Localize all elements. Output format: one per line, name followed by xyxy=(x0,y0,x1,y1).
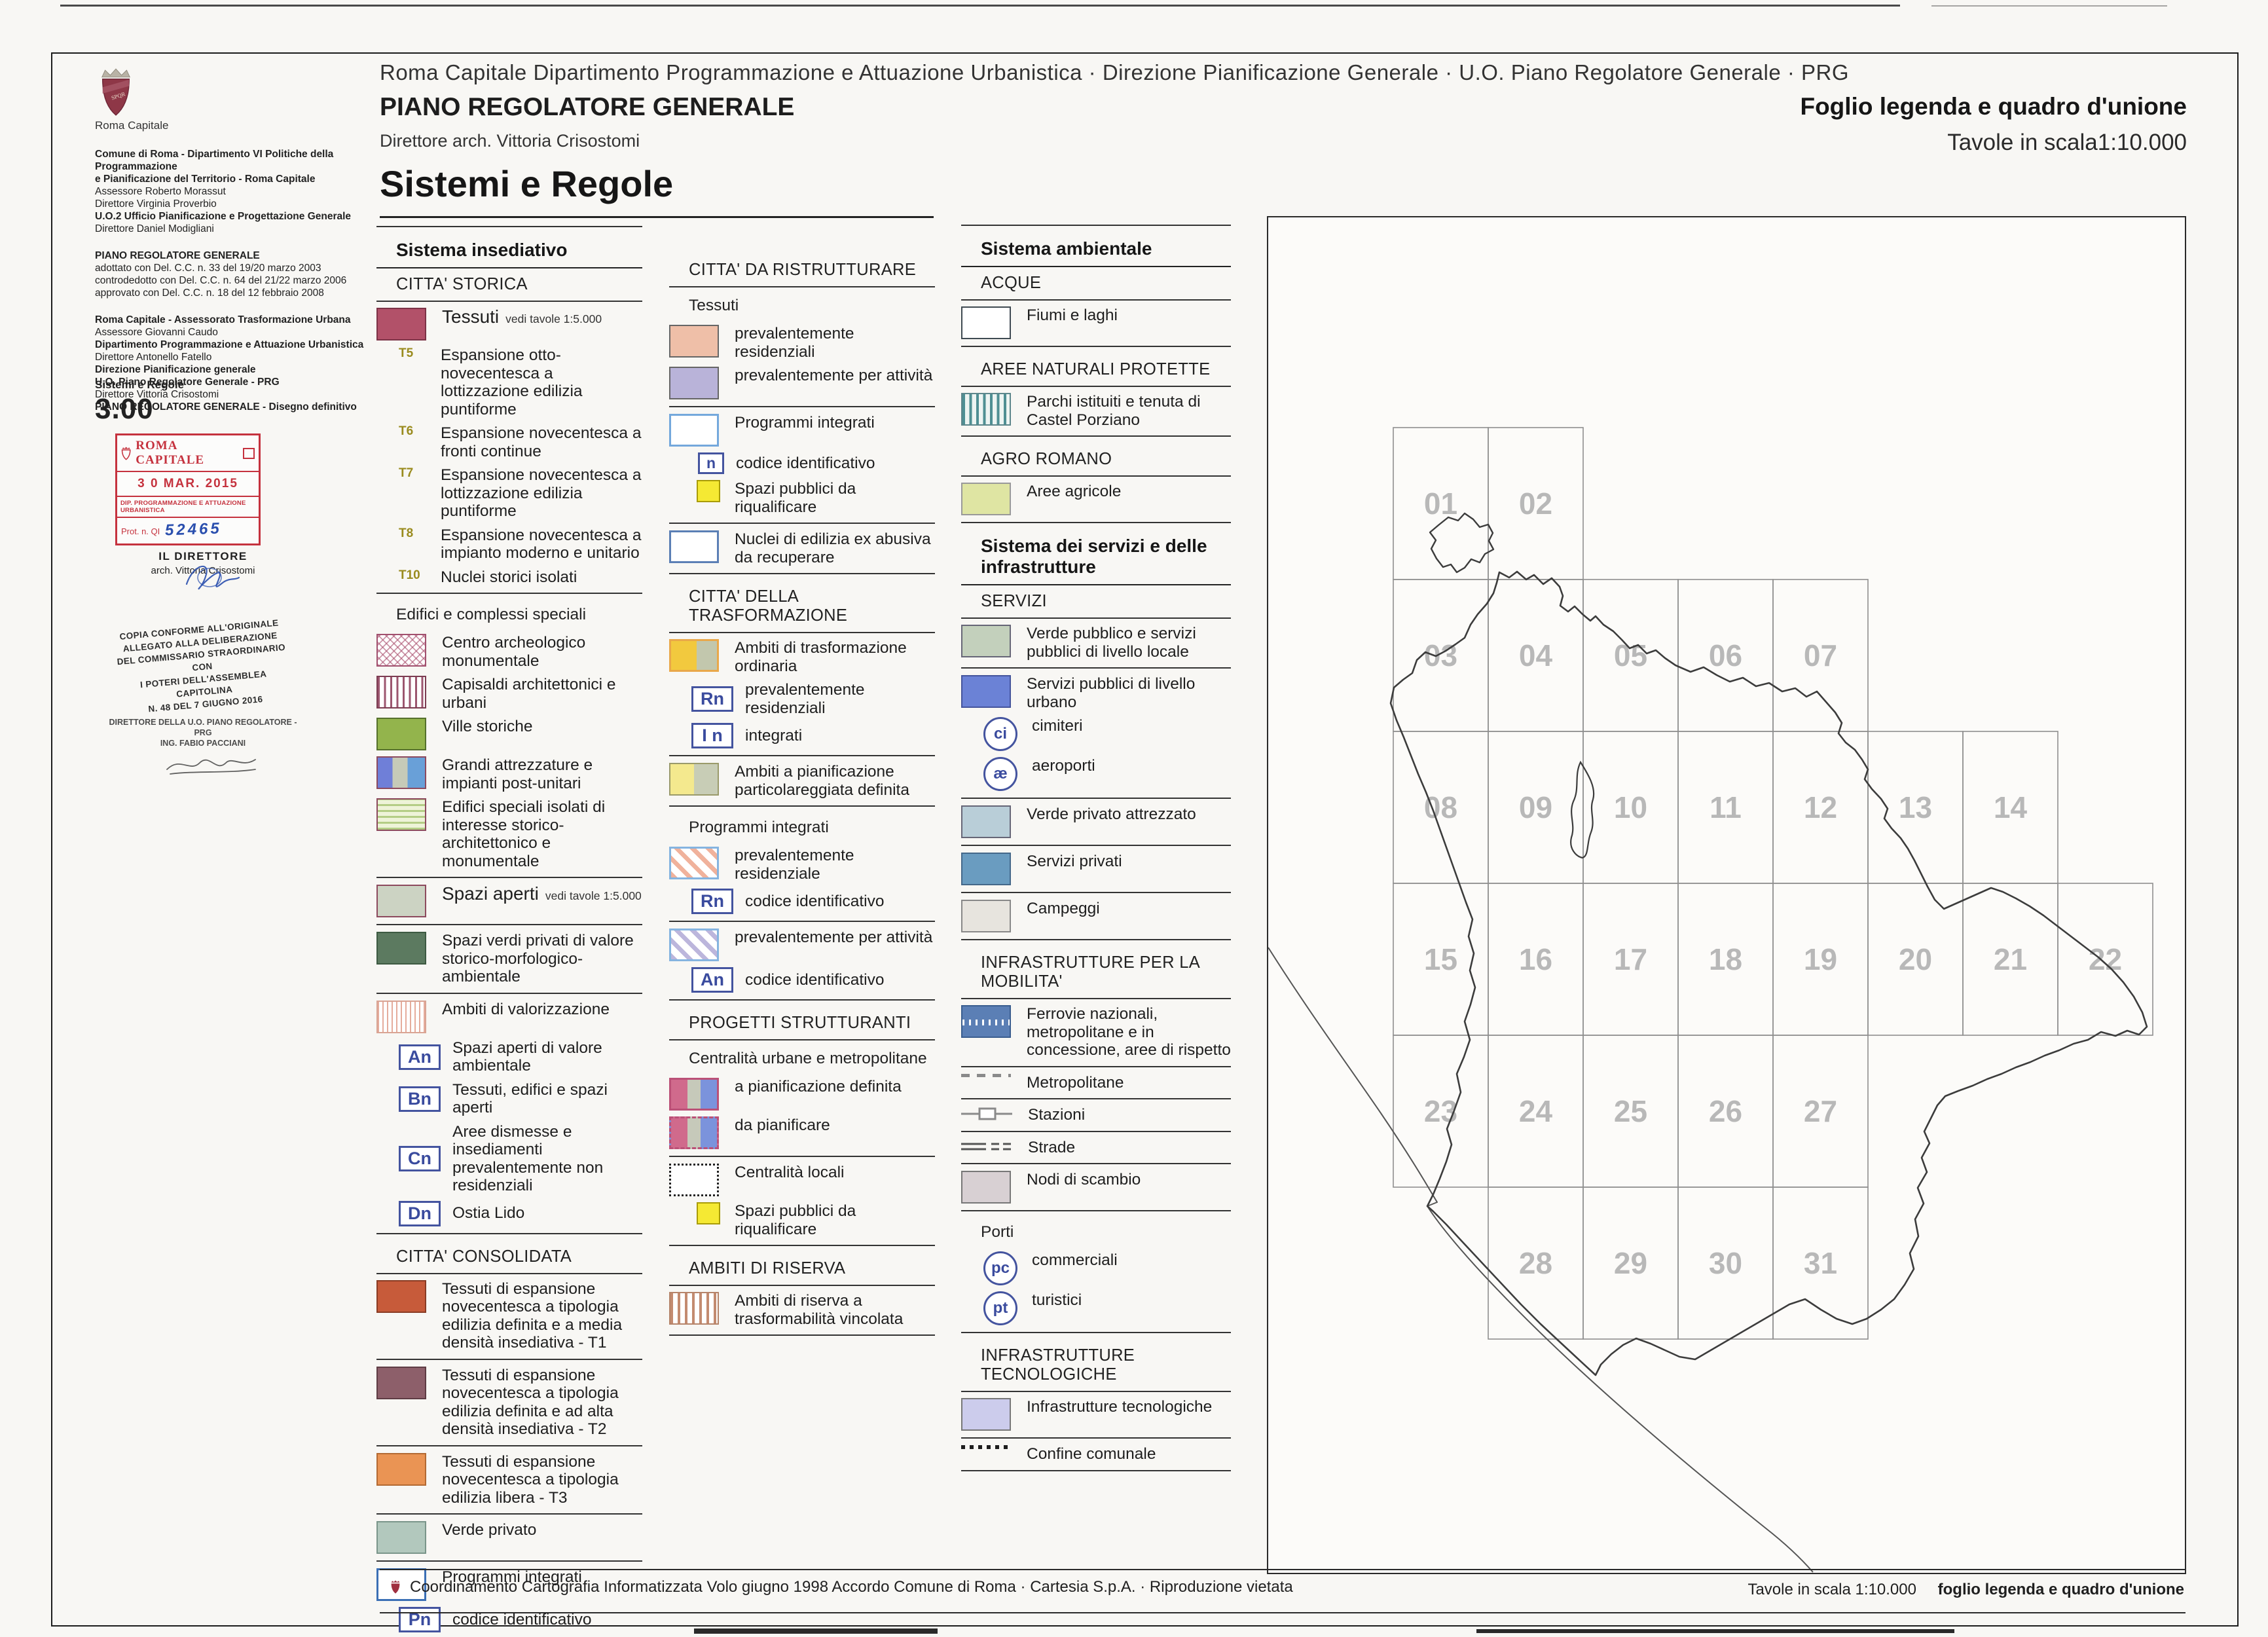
water-body xyxy=(1571,762,1594,858)
footer-sheet-title: foglio legenda e quadro d'unione xyxy=(1938,1581,2184,1598)
map-tile-number: 30 xyxy=(1709,1246,1742,1280)
title-block-line: approvato con Del. C.C. n. 18 del 12 feb… xyxy=(95,287,376,299)
code-badge: Rn xyxy=(691,889,733,914)
legend-item-text: Capisaldi architettonici e urbani xyxy=(442,676,616,712)
code-badge: Bn xyxy=(399,1086,441,1112)
centralita-da-pianificare-swatch xyxy=(669,1116,719,1149)
legend-divider xyxy=(961,1163,1231,1164)
legend-item: Spazi verdi privati di valore storico-mo… xyxy=(376,932,642,986)
legend-item-text: Servizi pubblici di livello urbano xyxy=(1027,675,1195,711)
code-badge: n xyxy=(698,452,724,474)
legend-item-label: Metropolitane xyxy=(1027,1074,1231,1092)
legend-item-label: Campeggi xyxy=(1027,900,1231,918)
legend-subsection-header: AGRO ROMANO xyxy=(961,443,1231,477)
legend-item-label: codice identificativo xyxy=(745,892,935,911)
legend-item: Ambiti a pianificazione particolareggiat… xyxy=(669,763,935,799)
map-tile-number: 12 xyxy=(1804,790,1837,824)
legend-item: Aree agricole xyxy=(961,483,1231,515)
title-block-line: U.O.2 Ufficio Pianificazione e Progettaz… xyxy=(95,210,376,223)
legend-divider xyxy=(669,805,935,807)
legend-item: T8Espansione novecentesca a impianto mod… xyxy=(376,526,642,562)
legend-item: Infrastrutture tecnologiche xyxy=(961,1398,1231,1431)
servizi-privati-swatch xyxy=(961,853,1011,885)
legend-item: Confine comunale xyxy=(961,1445,1231,1463)
title-block-line: Assessore Giovanni Caudo xyxy=(95,326,376,339)
legend-item: AnSpazi aperti di valore ambientale xyxy=(376,1039,642,1075)
legend-item-text: Spazi pubblici da riqualificare xyxy=(735,1202,856,1238)
legend-group-label: Tessuti xyxy=(669,291,935,319)
conformity-stamp: COPIA CONFORME ALL'ORIGINALEALLEGATO ALL… xyxy=(113,616,292,718)
stamp-dept: DIP. PROGRAMMAZIONE E ATTUAZIONE URBANIS… xyxy=(117,497,259,518)
legend-item: prevalentemente per attività xyxy=(669,929,935,961)
ferrovie-swatch xyxy=(961,1005,1011,1038)
map-tile-number: 06 xyxy=(1709,638,1742,672)
legend-item-label: prevalentemente residenziali xyxy=(745,681,935,717)
legend-divider xyxy=(376,1560,642,1562)
stamp-shield-icon xyxy=(121,447,131,460)
legend-item-label: Strade xyxy=(1028,1139,1231,1157)
legend-item: prevalentemente residenziale xyxy=(669,847,935,883)
legend-item: T5Espansione otto-novecentesca a lottizz… xyxy=(376,346,642,418)
code-badge: Rn xyxy=(691,686,733,712)
legend-item-text: Parchi istituiti e tenuta di Castel Porz… xyxy=(1027,393,1201,429)
legend-item: Servizi privati xyxy=(961,853,1231,885)
strade-symbol xyxy=(961,1139,1012,1154)
legend-item-label: Ville storiche xyxy=(442,718,642,736)
legend-item: Ambiti di riserva a trasformabilità vinc… xyxy=(669,1292,935,1328)
legend-item: Pncodice identificativo xyxy=(376,1607,642,1632)
legend-item-label: cimiteri xyxy=(1032,717,1231,735)
legend-item: Nodi di scambio xyxy=(961,1171,1231,1204)
legend-divider xyxy=(961,1131,1231,1132)
legend-item: I nintegrati xyxy=(669,723,935,748)
legend-item-label: Tessuti di espansione novecentesca a tip… xyxy=(442,1453,642,1507)
union-map-frame: 0102030405060708091011121314151617181920… xyxy=(1267,216,2186,1574)
map-tile-number: 19 xyxy=(1804,942,1837,976)
legend-item-text: Spazi verdi privati di valore storico-mo… xyxy=(442,932,634,985)
legend-divider xyxy=(376,1445,642,1446)
confine-comunale-symbol xyxy=(961,1445,1011,1449)
legend-divider xyxy=(376,1233,642,1234)
legend-item-label: prevalentemente residenziali xyxy=(735,325,935,361)
legend-item: prevalentemente residenziali xyxy=(669,325,935,361)
scanned-sheet: Roma Capitale Dipartimento Programmazion… xyxy=(0,0,2268,1637)
legend-item-text: Verde privato xyxy=(442,1521,536,1539)
legend-item: a pianificazione definita xyxy=(669,1078,935,1111)
nuclei-abusivi-swatch xyxy=(669,530,719,563)
comune-boundary xyxy=(1391,572,2147,1375)
code-badge: I n xyxy=(691,723,733,748)
legend-item-label: aeroporti xyxy=(1032,757,1231,775)
legend-item: Centro archeologico monumentale xyxy=(376,634,642,670)
legend-section-header: Sistema ambientale xyxy=(961,232,1231,267)
legend-divider xyxy=(961,845,1231,846)
legend-item-label: Tessuti, edifici e spazi aperti xyxy=(452,1081,642,1117)
t2-swatch xyxy=(376,1367,426,1399)
legend-item: pccommerciali xyxy=(961,1251,1231,1285)
edifici-speciali-swatch xyxy=(376,798,426,831)
legend-group-label: Centralità urbane e metropolitane xyxy=(669,1044,935,1072)
sheet-id-block: Foglio legenda e quadro d'unione Tavole … xyxy=(1506,93,2187,156)
legend-divider xyxy=(961,1066,1231,1067)
legend-divider xyxy=(669,573,935,574)
campeggi-swatch xyxy=(961,900,1011,932)
pacciani-line: DIRETTORE DELLA U.O. PIANO REGOLATORE - … xyxy=(105,717,301,738)
legend-item-label: Spazi apertivedi tavole 1:5.000 xyxy=(442,885,642,906)
legend-item-label: Programmi integrati xyxy=(735,414,935,432)
grandi-attrezzature-swatch xyxy=(376,756,426,789)
legend-item-label: Grandi attrezzature e impianti post-unit… xyxy=(442,756,642,792)
legend-item: Verde privato attrezzato xyxy=(961,805,1231,838)
parchi-swatch xyxy=(961,393,1011,426)
legend-divider xyxy=(376,993,642,994)
stamp-prot-label: Prot. n. QI xyxy=(121,526,160,536)
protocol-stamp: ROMA CAPITALE 3 0 MAR. 2015 DIP. PROGRAM… xyxy=(115,433,261,545)
legend-item-label: codice identificativo xyxy=(745,971,935,989)
title-block-line: Roma Capitale - Assessorato Trasformazio… xyxy=(95,314,376,326)
map-tile-number: 24 xyxy=(1519,1094,1553,1128)
legend-item-text: Tessuti di espansione novecentesca a tip… xyxy=(442,1280,622,1352)
trasformazione-ordinaria-swatch xyxy=(669,639,719,672)
legend-item: prevalentemente per attività xyxy=(669,367,935,399)
legend-item: Centralità locali xyxy=(669,1164,935,1196)
title-block-line: Direttore Virginia Proverbio xyxy=(95,198,376,210)
title-block-group: Comune di Roma - Dipartimento VI Politic… xyxy=(95,148,376,235)
legend-item: Spazi pubblici da riqualificare xyxy=(669,1202,935,1238)
legend-subsection-header: CITTA' DELLA TRASFORMAZIONE xyxy=(669,581,935,633)
legend-section-header: Sistema dei servizi e delle infrastruttu… xyxy=(961,530,1231,585)
legend-divider xyxy=(961,1437,1231,1439)
legend-subsection-header: AREE NATURALI PROTETTE xyxy=(961,354,1231,387)
legend-divider xyxy=(376,226,642,227)
legend-item-text: Tessuti di espansione novecentesca a tip… xyxy=(442,1367,619,1439)
legend-column-ambientale-servizi: Sistema ambientaleACQUEFiumi e laghiAREE… xyxy=(961,218,1231,1478)
code-badge: Dn xyxy=(399,1201,441,1226)
legend-item-text: Nuclei di edilizia ex abusiva da recuper… xyxy=(735,530,931,566)
legend-item-label: Infrastrutture tecnologiche xyxy=(1027,1398,1231,1416)
legend-item: Tessuti di espansione novecentesca a tip… xyxy=(376,1280,642,1352)
sheet-main-title: Sistemi e Regole xyxy=(380,162,673,205)
footer-shield-icon xyxy=(390,1580,401,1594)
legend-item-label: Spazi aperti di valore ambientale xyxy=(452,1039,642,1075)
legend-item-label: Ambiti di valorizzazione xyxy=(442,1001,642,1019)
boundary-exclave xyxy=(1430,513,1493,572)
legend-item-text: Centro archeologico monumentale xyxy=(442,634,585,670)
stamp-date: 3 0 MAR. 2015 xyxy=(117,472,259,497)
programmi-integrati-celeste-swatch xyxy=(669,414,719,447)
union-map: 0102030405060708091011121314151617181920… xyxy=(1268,217,2185,1573)
legend-subsection-header: PROGETTI STRUTTURANTI xyxy=(669,1007,935,1040)
legend-item-label: Nuclei storici isolati xyxy=(441,568,642,587)
metropolitane-line xyxy=(961,1074,1011,1077)
legend-item-text: Campeggi xyxy=(1027,900,1100,917)
legend-item-label: Parchi istituiti e tenuta di Castel Porz… xyxy=(1027,393,1231,429)
legend-item-label: Espansione novecentesca a impianto moder… xyxy=(441,526,642,562)
legend-item-text: prevalentemente residenziale xyxy=(735,847,854,883)
title-block-line: Direttore Daniel Modigliani xyxy=(95,223,376,235)
title-block-line: Direttore Antonello Fatello xyxy=(95,351,376,363)
t1-swatch xyxy=(376,1280,426,1313)
map-tile-number: 10 xyxy=(1614,790,1647,824)
legend-divider xyxy=(961,1098,1231,1099)
legend-divider xyxy=(669,1156,935,1157)
title-block-line: Direzione Pianificazione generale xyxy=(95,363,376,376)
legend-item: da pianificare xyxy=(669,1116,935,1149)
legend-item-text: Edifici speciali isolati di interesse st… xyxy=(442,798,605,870)
map-tile-number: 16 xyxy=(1519,942,1552,976)
map-tile-number: 11 xyxy=(1710,790,1742,824)
title-block-line: Assessore Roberto Morassut xyxy=(95,185,376,198)
code-badge: An xyxy=(399,1044,441,1070)
legend-item-label: prevalentemente per attività xyxy=(735,929,935,947)
title-block-line: adottato con Del. C.C. n. 33 del 19/20 m… xyxy=(95,262,376,274)
legend-item-label: turistici xyxy=(1032,1291,1231,1310)
legend-divider xyxy=(961,667,1231,669)
legend-item: Tessuti di espansione novecentesca a tip… xyxy=(376,1453,642,1507)
legend-item-label: da pianificare xyxy=(735,1116,935,1135)
legend-item-label: Espansione novecentesca a lottizzazione … xyxy=(441,466,642,521)
map-tile-number: 18 xyxy=(1709,942,1742,976)
centralita-locali-swatch xyxy=(669,1164,719,1196)
spazi-verdi-swatch xyxy=(376,932,426,965)
map-tile-number: 13 xyxy=(1899,790,1932,824)
legend-divider xyxy=(376,1359,642,1360)
footer-sheet-id: Tavole in scala 1:10.000 foglio legenda … xyxy=(1506,1581,2184,1599)
legend-item-label: Nuclei di edilizia ex abusiva da recuper… xyxy=(735,530,935,566)
infrastrutture-tecnologiche-swatch xyxy=(961,1398,1011,1431)
legend-divider xyxy=(961,939,1231,940)
legend-item-label: prevalentemente residenziale xyxy=(735,847,935,883)
legend-item-text: Ferrovie nazionali, metropolitane e in c… xyxy=(1027,1005,1231,1059)
metropolitane-symbol xyxy=(961,1074,1011,1077)
footer-scale: Tavole in scala 1:10.000 xyxy=(1747,1581,1916,1598)
legend-item-label: Confine comunale xyxy=(1027,1445,1231,1463)
legend-divider xyxy=(961,892,1231,893)
legend-item-label: Stazioni xyxy=(1028,1106,1231,1124)
footer-rule-bottom xyxy=(380,1612,2186,1613)
legend-item-text: Ambiti a pianificazione particolareggiat… xyxy=(735,763,909,799)
legend-item-label: Servizi privati xyxy=(1027,853,1231,871)
legend-item: T10Nuclei storici isolati xyxy=(376,568,642,587)
map-tile-number: 09 xyxy=(1519,790,1552,824)
legend-divider xyxy=(961,1210,1231,1211)
legend-item: Rncodice identificativo xyxy=(669,889,935,914)
stamp-prot-number: 52465 xyxy=(165,519,223,540)
legend-item-label: a pianificazione definita xyxy=(735,1078,935,1096)
legend-item: Ville storiche xyxy=(376,718,642,750)
roma-capitale-logo: SPQR xyxy=(97,67,135,121)
ville-storiche-swatch xyxy=(376,718,426,750)
legend-subsection-header: AMBITI DI RISERVA xyxy=(669,1253,935,1286)
legend-item-label: Tessutivedi tavole 1:5.000 xyxy=(442,308,642,329)
verde-attrezzato-swatch xyxy=(961,805,1011,838)
legend-item-label: prevalentemente per attività xyxy=(735,367,935,385)
legend-divider xyxy=(961,1332,1231,1333)
tessuti-swatch xyxy=(376,308,426,340)
stazioni-symbol xyxy=(961,1106,1012,1122)
legend-group-label: Porti xyxy=(961,1218,1231,1245)
map-tile-number: 14 xyxy=(1994,790,2028,824)
legend-item: Edifici speciali isolati di interesse st… xyxy=(376,798,642,870)
legend-item: Tessutivedi tavole 1:5.000 xyxy=(376,308,642,340)
legend-item-label: Ambiti di trasformazione ordinaria xyxy=(735,639,935,675)
series-label: Sistemi e Regole xyxy=(95,378,184,392)
map-tile-number: 02 xyxy=(1519,487,1552,521)
fiumi-laghi-swatch xyxy=(961,306,1011,339)
legend-item-label: integrati xyxy=(745,727,935,745)
legend-item: Verde pubblico e servizi pubblici di liv… xyxy=(961,625,1231,661)
legend-subsection-header: ACQUE xyxy=(961,267,1231,301)
legend-item-label: Spazi verdi privati di valore storico-mo… xyxy=(442,932,642,986)
legend-subsection-header: CITTA' DA RISTRUTTURARE xyxy=(669,254,935,287)
legend-item-text: Fiumi e laghi xyxy=(1027,306,1118,324)
map-tile-number: 25 xyxy=(1614,1094,1647,1128)
stripes-attivita-swatch xyxy=(669,929,719,961)
legend-item: Spazi pubblici da riqualificare xyxy=(669,480,935,516)
legend-item-text: Tessuti di espansione novecentesca a tip… xyxy=(442,1453,619,1507)
legend-item-text: Ambiti di riserva a trasformabilità vinc… xyxy=(735,1292,903,1328)
centro-archeologico-swatch xyxy=(376,634,426,667)
map-tile-number: 04 xyxy=(1519,638,1553,672)
director-line: Direttore arch. Vittoria Crisostomi xyxy=(380,131,640,151)
aree-agricole-swatch xyxy=(961,483,1011,515)
legend-section-header: Sistema insediativo xyxy=(376,234,642,268)
title-rule xyxy=(380,216,934,218)
map-tile-number: 20 xyxy=(1899,942,1932,976)
stamp-corner-box xyxy=(243,448,255,459)
legend-column-trasformazione: CITTA' DA RISTRUTTURARETessutiprevalente… xyxy=(669,254,935,1342)
map-tile-number: 22 xyxy=(2089,942,2122,976)
legend-divider xyxy=(669,1245,935,1246)
legend-item: Metropolitane xyxy=(961,1074,1231,1092)
map-tile-number: 29 xyxy=(1614,1246,1647,1280)
spazi-pubblici-swatch xyxy=(697,480,720,502)
legend-item-text: Verde pubblico e servizi pubblici di liv… xyxy=(1027,625,1196,661)
title-block-line: controdedotto con Del. C.C. n. 64 del 21… xyxy=(95,274,376,287)
legend-item-text: Centralità locali xyxy=(735,1164,845,1181)
legend-item-text: Ville storiche xyxy=(442,718,532,735)
legend-item-text: Infrastrutture tecnologiche xyxy=(1027,1398,1212,1416)
legend-divider xyxy=(961,346,1231,347)
legend-item-label: Spazi pubblici da riqualificare xyxy=(735,480,935,516)
legend-item-label: commerciali xyxy=(1032,1251,1231,1270)
legend-item: Capisaldi architettonici e urbani xyxy=(376,676,642,712)
map-tile-number: 17 xyxy=(1614,942,1647,976)
legend-divider xyxy=(669,999,935,1001)
tessuto-code: T8 xyxy=(399,526,433,541)
scan-artifact-bottom2 xyxy=(1476,1629,1954,1633)
pacciani-signature xyxy=(164,743,262,782)
legend-item-text: da pianificare xyxy=(735,1116,830,1134)
turistici-icon: pt xyxy=(983,1291,1017,1325)
footer-credit: Coordinamento Cartografia Informatizzata… xyxy=(410,1578,1293,1596)
legend-item: BnTessuti, edifici e spazi aperti xyxy=(376,1081,642,1117)
legend-item-label: Centro archeologico monumentale xyxy=(442,634,642,670)
scan-artifact-bottom1 xyxy=(694,1628,938,1634)
tessuto-code: T6 xyxy=(399,424,433,439)
code-badge: Pn xyxy=(399,1607,441,1632)
department-line: Roma Capitale Dipartimento Programmazion… xyxy=(380,60,1849,85)
legend-item-text: Ambiti di trasformazione ordinaria xyxy=(735,639,907,675)
map-tile-number: 05 xyxy=(1614,638,1647,672)
legend-divider xyxy=(376,924,642,925)
legend-divider xyxy=(961,522,1231,523)
tessuto-code: T7 xyxy=(399,466,433,481)
legend-subsection-header: SERVIZI xyxy=(961,585,1231,619)
legend-item: CnAree dismesse e insediamenti prevalent… xyxy=(376,1123,642,1195)
code-badge: Cn xyxy=(399,1146,441,1171)
plan-title: PIANO REGOLATORE GENERALE xyxy=(380,93,794,122)
legend-item-text: Servizi privati xyxy=(1027,853,1122,870)
legend-item-text: Verde privato attrezzato xyxy=(1027,805,1196,823)
legend-subsection-header: INFRASTRUTTURE TECNOLOGICHE xyxy=(961,1340,1231,1392)
legend-item-text: prevalentemente per attività xyxy=(735,367,932,384)
legend-item: Parchi istituiti e tenuta di Castel Porz… xyxy=(961,393,1231,429)
legend-item-label: Tessuti di espansione novecentesca a tip… xyxy=(442,1367,642,1439)
legend-divider xyxy=(669,406,935,407)
legend-item-text: Ambiti di valorizzazione xyxy=(442,1001,610,1018)
legend-item-label: Spazi pubblici da riqualificare xyxy=(735,1202,935,1238)
code-badge: An xyxy=(691,967,733,993)
legend-item-note: vedi tavole 1:5.000 xyxy=(505,312,602,325)
title-block-line: Dipartimento Programmazione e Attuazione… xyxy=(95,339,376,351)
spazi-aperti-swatch xyxy=(376,885,426,917)
legend-item-label: codice identificativo xyxy=(736,454,935,473)
scan-artifact-top2 xyxy=(1931,5,2167,7)
ambiti-riserva-swatch xyxy=(669,1292,719,1325)
legend-divider xyxy=(961,225,1231,226)
legend-item-text: Grandi attrezzature e impianti post-unit… xyxy=(442,756,593,792)
legend-divider xyxy=(961,798,1231,799)
legend-item: ptturistici xyxy=(961,1291,1231,1325)
pianificazione-particolareggiata-swatch xyxy=(669,763,719,796)
commerciali-icon: pc xyxy=(983,1251,1017,1285)
legend-item-text: Tessuti xyxy=(442,306,499,327)
legend-item: Ferrovie nazionali, metropolitane e in c… xyxy=(961,1005,1231,1059)
legend-subsection-header: INFRASTRUTTURE PER LA MOBILITA' xyxy=(961,947,1231,999)
legend-item-text: prevalentemente per attività xyxy=(735,929,932,946)
centralita-definita-swatch xyxy=(669,1078,719,1111)
legend-item: Spazi apertivedi tavole 1:5.000 xyxy=(376,885,642,917)
aeroporti-icon: æ xyxy=(983,757,1017,791)
legend-item: æaeroporti xyxy=(961,757,1231,791)
legend-item-text: Spazi aperti xyxy=(442,883,539,904)
confine-comunale-line xyxy=(961,1445,1011,1449)
legend-item: ncodice identificativo xyxy=(669,452,935,474)
legend-item-text: Nodi di scambio xyxy=(1027,1171,1141,1188)
legend-item: T6Espansione novecentesca a fronti conti… xyxy=(376,424,642,460)
map-tile-number: 03 xyxy=(1424,638,1457,672)
footer-rule-top xyxy=(380,1569,2186,1570)
legend-item: Rnprevalentemente residenziali xyxy=(669,681,935,717)
cimiteri-icon: ci xyxy=(983,717,1017,751)
map-tile-number: 21 xyxy=(1994,942,2027,976)
stripes-residenziale-swatch xyxy=(669,847,719,879)
legend-item: DnOstia Lido xyxy=(376,1201,642,1226)
ristrutturare-attivita-swatch xyxy=(669,367,719,399)
legend-divider xyxy=(376,1513,642,1515)
map-tile-number: 26 xyxy=(1709,1094,1742,1128)
legend-item-text: Aree agricole xyxy=(1027,483,1121,500)
map-tile-number: 27 xyxy=(1804,1094,1837,1128)
legend-item: cicimiteri xyxy=(961,717,1231,751)
legend-item: T7Espansione novecentesca a lottizzazion… xyxy=(376,466,642,521)
legend-divider xyxy=(376,593,642,594)
legend-divider xyxy=(669,523,935,524)
legend-item-label: Ambiti di riserva a trasformabilità vinc… xyxy=(735,1292,935,1328)
legend-item-label: Tessuti di espansione novecentesca a tip… xyxy=(442,1280,642,1352)
legend-item-label: Verde pubblico e servizi pubblici di liv… xyxy=(1027,625,1231,661)
